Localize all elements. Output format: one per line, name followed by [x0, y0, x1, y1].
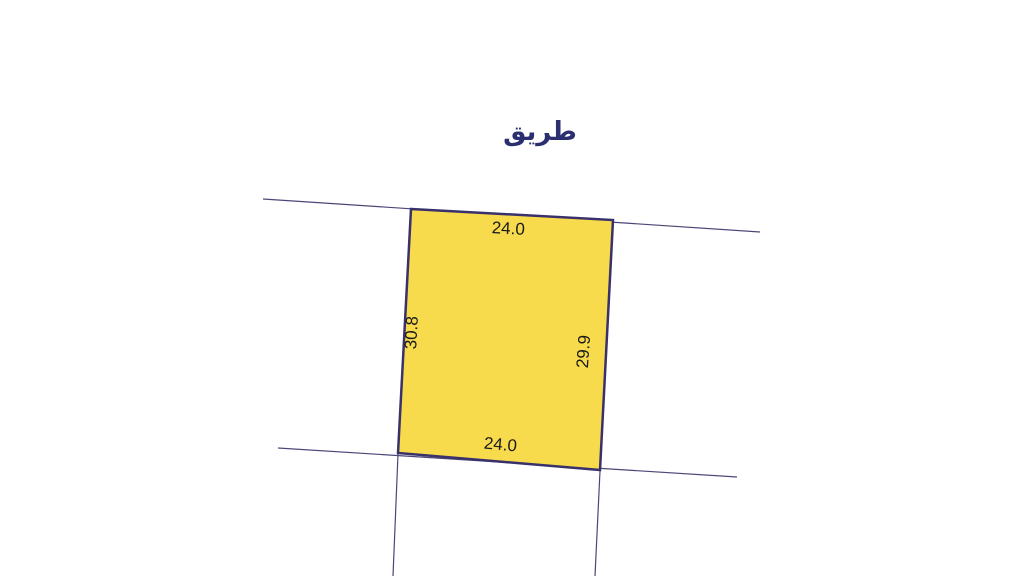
dimension-label-right: 29.9: [573, 334, 594, 368]
parcel-map: 24.0 24.0 30.8 29.9 طريق: [0, 0, 1024, 576]
right-boundary-extension-line: [595, 471, 600, 576]
road-label: طريق: [503, 117, 577, 147]
left-boundary-extension-line: [393, 454, 398, 576]
dimension-label-bottom: 24.0: [483, 434, 518, 456]
dimension-label-top: 24.0: [491, 218, 525, 239]
parcel-map-canvas: 24.0 24.0 30.8 29.9 طريق: [0, 0, 1024, 576]
dimension-label-left: 30.8: [401, 316, 422, 350]
